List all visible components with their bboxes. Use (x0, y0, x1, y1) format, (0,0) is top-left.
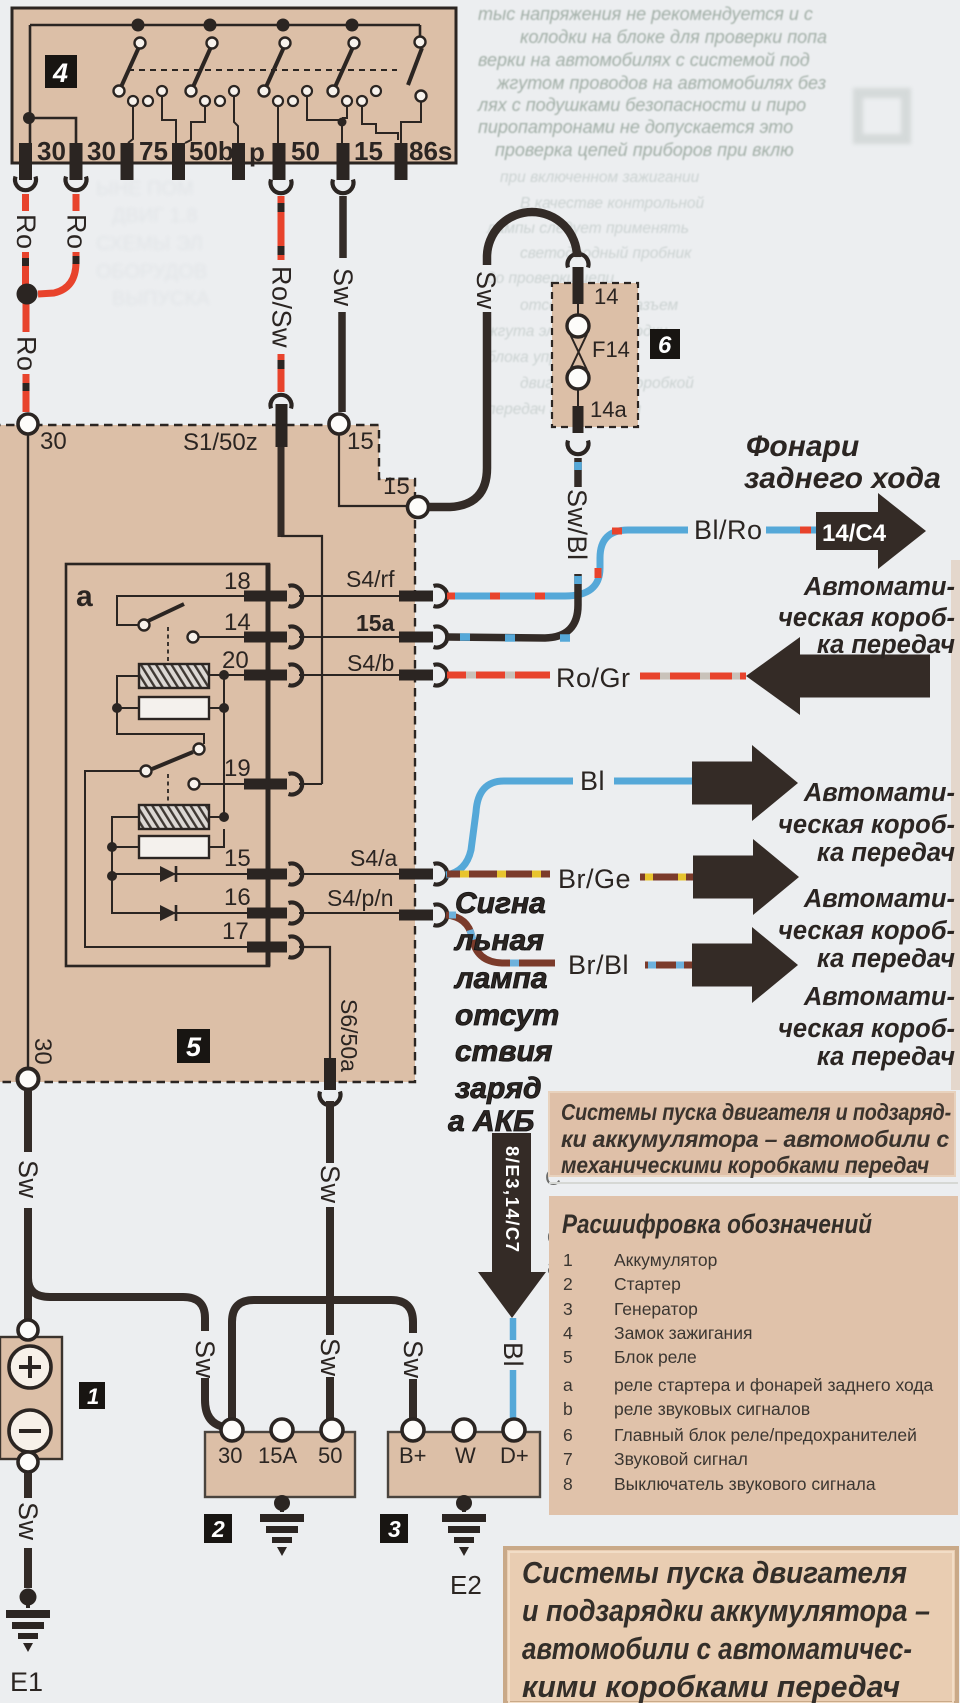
svg-text:ДВИГ 1.8: ДВИГ 1.8 (112, 205, 197, 227)
svg-text:Bl: Bl (580, 766, 605, 796)
svg-text:Автомати-: Автомати- (803, 885, 955, 913)
svg-text:a: a (76, 580, 93, 613)
svg-text:S6/50a: S6/50a (336, 999, 362, 1072)
svg-text:Sw: Sw (13, 1160, 43, 1199)
svg-text:6: 6 (658, 332, 672, 359)
svg-text:4: 4 (563, 1323, 573, 1343)
svg-text:Sw: Sw (328, 268, 358, 307)
svg-text:пиропатронами не допускается э: пиропатронами не допускается это (478, 117, 793, 137)
svg-text:ствия: ствия (455, 1035, 553, 1068)
svg-text:ческая короб-: ческая короб- (778, 917, 955, 945)
svg-text:14/C4: 14/C4 (822, 520, 887, 547)
svg-text:2: 2 (211, 1516, 225, 1542)
svg-text:ка передач: ка передач (817, 839, 955, 867)
svg-text:1: 1 (87, 1384, 99, 1409)
svg-text:В качестве контрольной: В качестве контрольной (520, 195, 705, 212)
svg-text:Замок зажигания: Замок зажигания (614, 1323, 752, 1343)
svg-text:ка передач: ка передач (817, 945, 955, 973)
svg-text:Сигна: Сигна (455, 887, 546, 920)
svg-text:Автомати-: Автомати- (803, 983, 955, 1011)
svg-text:S4/rf: S4/rf (346, 566, 395, 592)
svg-text:жгутом проводов на автомобилях: жгутом проводов на автомобилях без (496, 73, 826, 93)
svg-text:Sw: Sw (471, 271, 501, 310)
svg-text:14: 14 (594, 284, 618, 309)
svg-text:15: 15 (383, 473, 410, 500)
svg-text:W: W (455, 1443, 476, 1468)
svg-text:a: a (563, 1375, 573, 1395)
svg-text:и подзарядки аккумулятора –: и подзарядки аккумулятора – (522, 1593, 930, 1628)
svg-text:Ro: Ro (12, 336, 42, 372)
svg-text:колодки на блоке для проверки: колодки на блоке для проверки попа (520, 27, 827, 47)
svg-text:автомобили с автоматичес-: автомобили с автоматичес- (522, 1631, 912, 1666)
svg-text:B+: B+ (399, 1443, 427, 1468)
svg-text:S4/a: S4/a (350, 845, 398, 871)
svg-text:30: 30 (29, 1038, 56, 1065)
svg-text:3: 3 (388, 1516, 401, 1542)
svg-text:3: 3 (563, 1299, 573, 1319)
svg-text:кими коробками передач: кими коробками передач (522, 1669, 900, 1703)
svg-text:Стартер: Стартер (614, 1274, 681, 1294)
svg-text:при включенном зажигании: при включенном зажигании (500, 169, 700, 186)
svg-text:15: 15 (354, 136, 383, 166)
svg-text:Системы пуска двигателя: Системы пуска двигателя (522, 1555, 907, 1590)
svg-text:Sw: Sw (315, 1338, 345, 1377)
svg-text:ВЫПУСКА: ВЫПУСКА (112, 288, 210, 310)
svg-text:Ro/Gr: Ro/Gr (556, 663, 631, 693)
svg-text:14a: 14a (590, 397, 627, 422)
svg-text:Sw/Bl: Sw/Bl (562, 489, 592, 561)
svg-text:Br/Bl: Br/Bl (568, 950, 629, 980)
svg-text:льная: льная (453, 924, 544, 957)
svg-text:ческая короб-: ческая короб- (778, 811, 955, 839)
svg-text:16: 16 (224, 884, 251, 911)
svg-text:30: 30 (87, 136, 116, 166)
svg-text:заднего хода: заднего хода (744, 462, 941, 495)
svg-text:Sw: Sw (398, 1340, 428, 1379)
svg-text:50: 50 (291, 136, 320, 166)
svg-text:30: 30 (40, 428, 67, 455)
svg-text:Автомати-: Автомати- (803, 573, 955, 601)
svg-text:отсут: отсут (455, 999, 559, 1032)
svg-text:светодиодный пробник: светодиодный пробник (520, 245, 692, 262)
svg-text:15: 15 (224, 845, 251, 872)
svg-text:Sw: Sw (190, 1340, 220, 1379)
svg-text:СХЕМЫ ЭЛ: СХЕМЫ ЭЛ (96, 233, 203, 255)
svg-text:ОБОРУДОВ: ОБОРУДОВ (96, 261, 207, 283)
svg-text:p: p (249, 137, 265, 167)
svg-text:S4/b: S4/b (347, 650, 394, 676)
svg-text:Ro/Sw: Ro/Sw (267, 266, 297, 348)
svg-text:Блок реле: Блок реле (614, 1347, 697, 1367)
svg-text:15a: 15a (356, 610, 395, 636)
svg-text:заряд: заряд (455, 1072, 542, 1105)
svg-text:6: 6 (563, 1425, 573, 1445)
svg-text:проверка цепей приборов при вк: проверка цепей приборов при вклю (495, 140, 794, 160)
svg-text:15A: 15A (258, 1443, 297, 1468)
svg-text:b: b (563, 1399, 573, 1419)
svg-text:Автомати-: Автомати- (803, 779, 955, 807)
svg-text:Аккумулятор: Аккумулятор (614, 1250, 717, 1270)
svg-text:Фонари: Фонари (746, 430, 859, 463)
svg-text:Главный блок реле/предохраните: Главный блок реле/предохранителей (614, 1425, 917, 1445)
svg-text:30: 30 (218, 1443, 242, 1468)
svg-text:18: 18 (224, 568, 251, 595)
svg-text:Bl/Ro: Bl/Ro (694, 515, 763, 545)
svg-text:2: 2 (563, 1274, 573, 1294)
svg-text:17: 17 (222, 918, 249, 945)
svg-text:ЫНЕ ПОМ: ЫНЕ ПОМ (96, 178, 194, 200)
svg-text:ки аккумулятора – автомобили с: ки аккумулятора – автомобили с (561, 1126, 949, 1152)
svg-text:лампы следует применять: лампы следует применять (486, 220, 689, 237)
svg-text:лях с подушками безопасности и: лях с подушками безопасности и пиро (477, 95, 806, 115)
svg-text:Sw: Sw (315, 1165, 345, 1204)
svg-text:Генератор: Генератор (614, 1299, 698, 1319)
svg-text:F14: F14 (592, 337, 630, 362)
svg-text:19: 19 (224, 755, 251, 782)
svg-text:5: 5 (186, 1032, 202, 1062)
svg-text:Звуковой сигнал: Звуковой сигнал (614, 1449, 748, 1469)
svg-text:8: 8 (563, 1474, 573, 1494)
svg-text:S1/50z: S1/50z (183, 429, 258, 456)
svg-text:7: 7 (563, 1449, 573, 1469)
svg-text:ческая короб-: ческая короб- (778, 1015, 955, 1043)
svg-text:D+: D+ (500, 1443, 529, 1468)
svg-text:Sw: Sw (13, 1502, 43, 1541)
svg-text:реле звуковых сигналов: реле звуковых сигналов (614, 1399, 810, 1419)
svg-text:E2: E2 (450, 1570, 482, 1600)
svg-text:15: 15 (347, 428, 374, 455)
svg-text:Br/Ge: Br/Ge (558, 864, 631, 894)
svg-text:8/E3,14/C7: 8/E3,14/C7 (502, 1146, 523, 1254)
svg-text:1: 1 (563, 1250, 573, 1270)
svg-text:Системы пуска двигателя и подз: Системы пуска двигателя и подзаряд- (561, 1099, 951, 1125)
svg-text:реле стартера и фонарей заднег: реле стартера и фонарей заднего хода (614, 1375, 934, 1395)
svg-text:лампа: лампа (453, 962, 548, 995)
svg-text:механическими коробками переда: механическими коробками передач (561, 1152, 929, 1178)
svg-text:30: 30 (37, 136, 66, 166)
svg-text:14: 14 (224, 609, 251, 636)
svg-text:50b: 50b (189, 136, 234, 166)
svg-text:E1: E1 (10, 1667, 43, 1697)
svg-text:ческая короб-: ческая короб- (778, 604, 955, 632)
svg-text:5: 5 (563, 1347, 573, 1367)
svg-text:20: 20 (222, 647, 249, 674)
svg-text:ка передач: ка передач (817, 1043, 955, 1071)
svg-text:Bl: Bl (498, 1342, 528, 1367)
svg-text:тыс напряжения не рекомендуетс: тыс напряжения не рекомендуется и с (478, 4, 813, 24)
svg-text:верки на автомобилях с системо: верки на автомобилях с системой под (478, 50, 810, 70)
svg-text:4: 4 (52, 58, 68, 88)
svg-text:Ro: Ro (11, 214, 41, 250)
svg-text:S4/p/n: S4/p/n (327, 885, 394, 911)
svg-text:ка передач: ка передач (817, 631, 955, 659)
svg-text:Выключатель звукового сигнала: Выключатель звукового сигнала (614, 1474, 876, 1494)
svg-text:75: 75 (139, 136, 168, 166)
svg-text:50: 50 (318, 1443, 342, 1468)
svg-text:86s: 86s (409, 136, 452, 166)
svg-text:Ro: Ro (62, 214, 92, 250)
svg-text:Расшифровка обозначений: Расшифровка обозначений (562, 1209, 872, 1239)
